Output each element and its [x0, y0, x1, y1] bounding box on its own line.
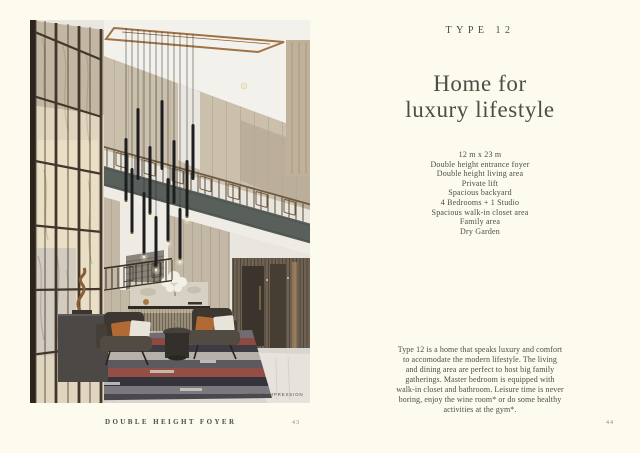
- page-title: Home for luxury lifestyle: [330, 71, 630, 123]
- photo-caption: DOUBLE HEIGHT FOYER: [105, 418, 236, 426]
- photo-watermark: ARTIST IMPRESSION: [245, 392, 304, 397]
- foyer-photo-illustration: ARTIST IMPRESSION: [30, 20, 310, 403]
- type-label: TYPE 12: [330, 25, 630, 36]
- brochure-spread: ARTIST IMPRESSION DOUBLE HEIGHT FOYER 43…: [0, 0, 640, 453]
- page-number-right: 44: [606, 420, 614, 426]
- page-number-left: 43: [292, 420, 300, 426]
- feature-list: 12 m x 23 m Double height entrance foyer…: [330, 150, 630, 236]
- foyer-photo: ARTIST IMPRESSION: [30, 20, 310, 403]
- right-page: TYPE 12 Home for luxury lifestyle 12 m x…: [330, 0, 630, 453]
- description-paragraph: Type 12 is a home that speaks luxury and…: [365, 345, 595, 415]
